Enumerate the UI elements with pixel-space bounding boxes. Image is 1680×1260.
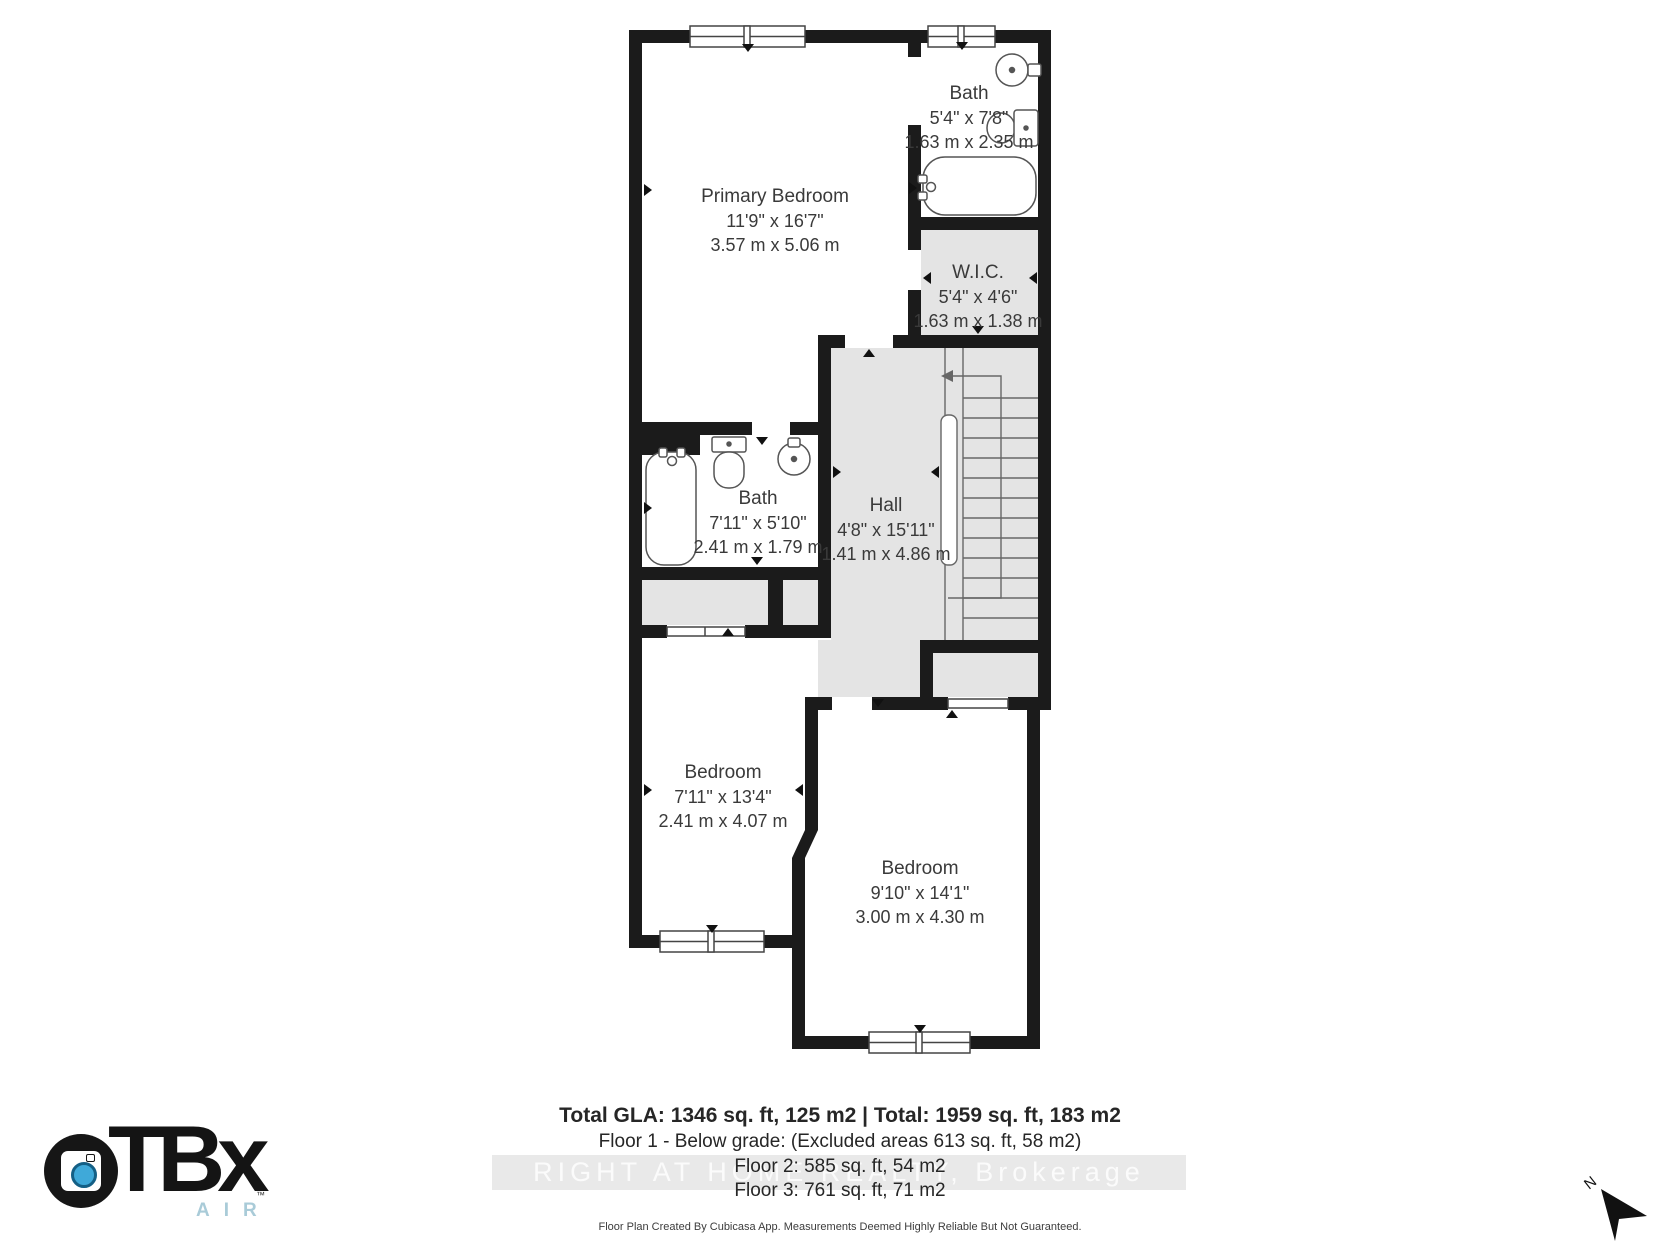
room-label-bedroom-right: Bedroom 9'10" x 14'1" 3.00 m x 4.30 m: [855, 856, 984, 929]
room-dim-imperial: 5'4" x 7'8": [904, 106, 1033, 130]
room-dim-metric: 2.41 m x 4.07 m: [658, 809, 787, 833]
closet-a-floor: [642, 580, 768, 625]
toilet-icon: [712, 437, 746, 488]
room-label-bedroom-left: Bedroom 7'11" x 13'4" 2.41 m x 4.07 m: [658, 760, 787, 833]
floor3-line: Floor 3: 761 sq. ft, 71 m2: [734, 1180, 945, 1202]
room-dim-metric: 3.00 m x 4.30 m: [855, 905, 984, 929]
camera-flash-notch: [86, 1154, 95, 1162]
room-label-bath-upper: Bath 5'4" x 7'8" 1.63 m x 2.35 m: [904, 81, 1033, 154]
room-dim-imperial: 7'11" x 13'4": [658, 785, 787, 809]
room-name: Bedroom: [658, 760, 787, 785]
compass-north-label: N: [1581, 1173, 1600, 1193]
room-name: Bath: [693, 486, 822, 511]
room-dim-metric: 1.63 m x 1.38 m: [913, 309, 1042, 333]
room-dim-metric: 3.57 m x 5.06 m: [701, 233, 849, 257]
disclaimer-text: Floor Plan Created By Cubicasa App. Meas…: [598, 1221, 1081, 1233]
logo-circle: [44, 1134, 118, 1208]
window-primary-bedroom: [690, 26, 805, 47]
sink-icon: [778, 438, 810, 475]
total-gla-line: Total GLA: 1346 sq. ft, 125 m2 | Total: …: [559, 1104, 1121, 1128]
room-name: Hall: [821, 493, 950, 518]
room-label-wic: W.I.C. 5'4" x 4'6" 1.63 m x 1.38 m: [913, 260, 1042, 333]
room-label-primary-bedroom: Primary Bedroom 11'9" x 16'7" 3.57 m x 5…: [701, 184, 849, 257]
hall-lower-floor: [818, 640, 920, 697]
closet-b-floor: [783, 580, 818, 625]
bedroom-closet-opening: [948, 699, 1008, 708]
window-bedroom-left: [660, 931, 764, 952]
room-dim-metric: 1.41 m x 4.86 m: [821, 542, 950, 566]
logo-tbx-text: TBx: [108, 1112, 262, 1206]
brand-logo: TBx ™ AIR: [40, 1110, 280, 1225]
floorplan-page: N Primary Bedroom 11'9" x 16'7" 3.57 m x…: [0, 0, 1680, 1260]
logo-air-text: AIR: [196, 1200, 271, 1222]
room-label-hall: Hall 4'8" x 15'11" 1.41 m x 4.86 m: [821, 493, 950, 566]
camera-lens-icon: [71, 1162, 97, 1188]
room-dim-metric: 2.41 m x 1.79 m: [693, 535, 822, 559]
closet-opening: [667, 627, 745, 636]
room-dim-imperial: 5'4" x 4'6": [913, 285, 1042, 309]
room-dim-imperial: 4'8" x 15'11": [821, 518, 950, 542]
room-name: Bath: [904, 81, 1033, 106]
room-label-bath-main: Bath 7'11" x 5'10" 2.41 m x 1.79 m: [693, 486, 822, 559]
room-name: Primary Bedroom: [701, 184, 849, 209]
north-arrow-icon: N: [1581, 1173, 1647, 1241]
stair-landing-floor: [933, 653, 1038, 697]
bathtub-icon: [918, 157, 1036, 215]
room-name: Bedroom: [855, 856, 984, 881]
room-dim-imperial: 9'10" x 14'1": [855, 881, 984, 905]
window-bedroom-right: [869, 1032, 970, 1053]
room-dim-imperial: 7'11" x 5'10": [693, 511, 822, 535]
room-name: W.I.C.: [913, 260, 1042, 285]
bathtub-icon: [646, 448, 696, 565]
room-dim-imperial: 11'9" x 16'7": [701, 209, 849, 233]
logo-trademark: ™: [256, 1190, 265, 1200]
room-dim-metric: 1.63 m x 2.35 m: [904, 130, 1033, 154]
floor2-line: Floor 2: 585 sq. ft, 54 m2: [734, 1156, 945, 1178]
camera-icon: [61, 1151, 101, 1191]
floor1-line: Floor 1 - Below grade: (Excluded areas 6…: [599, 1131, 1082, 1153]
